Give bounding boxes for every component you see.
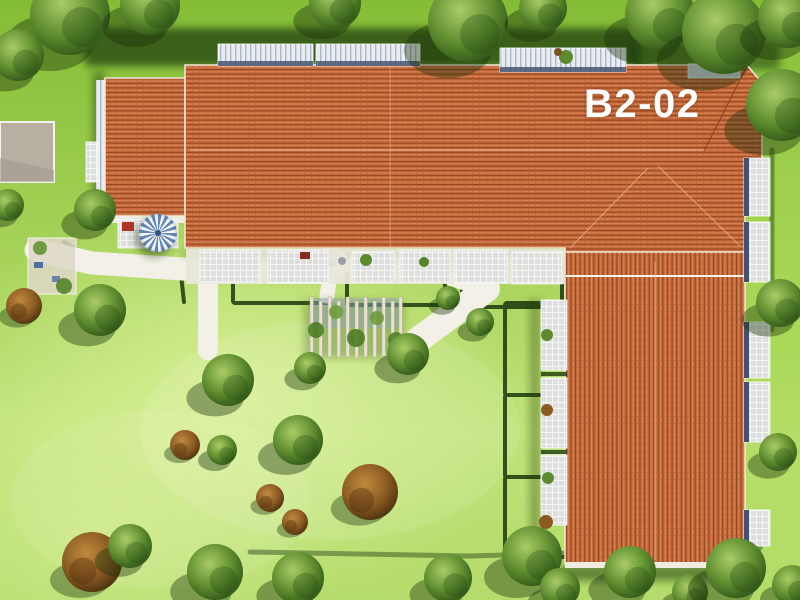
terrace-plant (554, 48, 562, 56)
terrace-patio (352, 252, 394, 282)
building-unit-label[interactable]: B2-02 (584, 82, 700, 127)
garden-structure (28, 238, 76, 294)
south-terraces (186, 249, 565, 284)
terrace-furniture (122, 222, 134, 231)
bush (0, 288, 42, 328)
balcony (744, 222, 770, 282)
tree (0, 189, 24, 227)
patio-plant (541, 329, 553, 341)
south-wing-west-patios (539, 300, 567, 529)
aerial-site-render: B2-02 (0, 0, 800, 600)
west-terrace (86, 142, 98, 182)
terrace-patio (268, 250, 328, 283)
pergola-vine (347, 329, 365, 347)
balcony (744, 158, 770, 216)
tree (410, 554, 472, 600)
terrace-furniture (300, 252, 310, 259)
tree (742, 279, 800, 337)
roof-left-wing (105, 78, 185, 216)
terrace-furniture (338, 257, 346, 265)
pergola-vine (329, 305, 343, 319)
terrace-patio (541, 455, 567, 525)
patio-plant (539, 515, 553, 529)
tree (0, 29, 44, 91)
terrace-railing (218, 44, 313, 66)
terrace-patio (200, 250, 260, 282)
east-balconies (744, 158, 770, 546)
terrace-plant (419, 257, 429, 267)
tree (760, 565, 800, 600)
balcony (744, 382, 770, 442)
patio-plant (542, 472, 554, 484)
patio-plant (541, 404, 553, 416)
parasol (139, 214, 177, 252)
terrace-plant (360, 254, 372, 266)
tree (61, 189, 116, 239)
pergola-vine (308, 322, 324, 338)
pergola-vine (370, 311, 384, 325)
terrace-patio (512, 252, 562, 284)
concrete-pad (0, 122, 54, 182)
terrace-patio (455, 250, 507, 283)
